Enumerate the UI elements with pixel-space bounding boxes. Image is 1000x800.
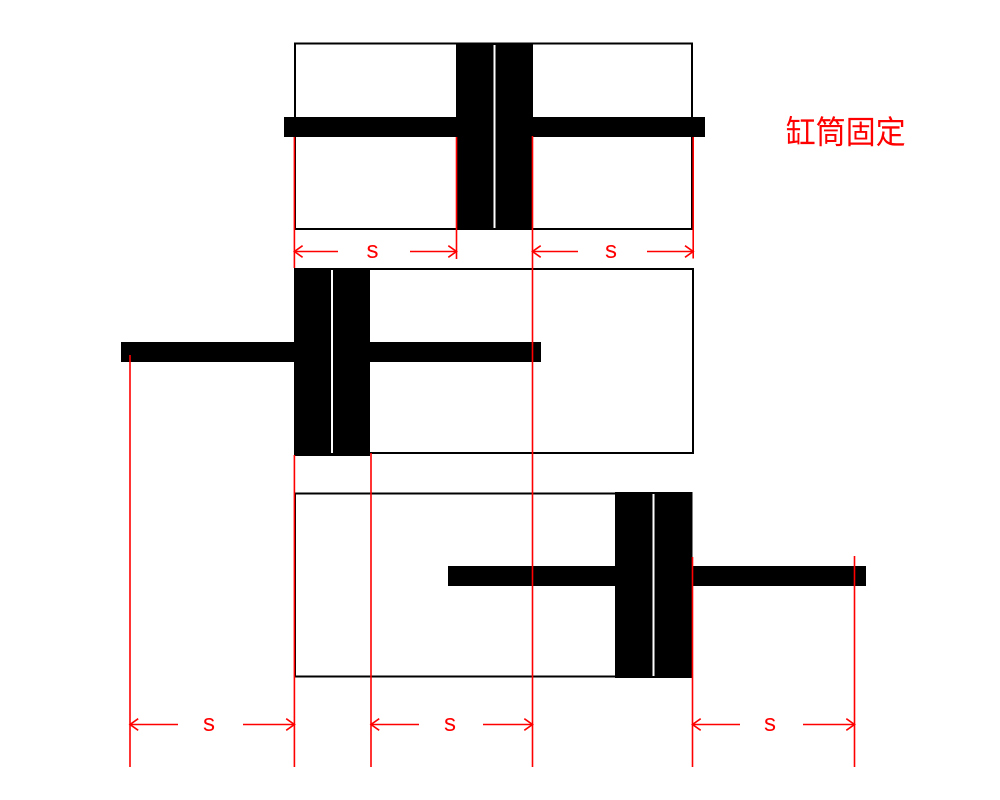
svg-text:s: s bbox=[367, 237, 379, 264]
svg-text:s: s bbox=[444, 710, 456, 737]
svg-text:s: s bbox=[605, 237, 617, 264]
svg-text:s: s bbox=[203, 710, 215, 737]
svg-text:s: s bbox=[764, 710, 776, 737]
